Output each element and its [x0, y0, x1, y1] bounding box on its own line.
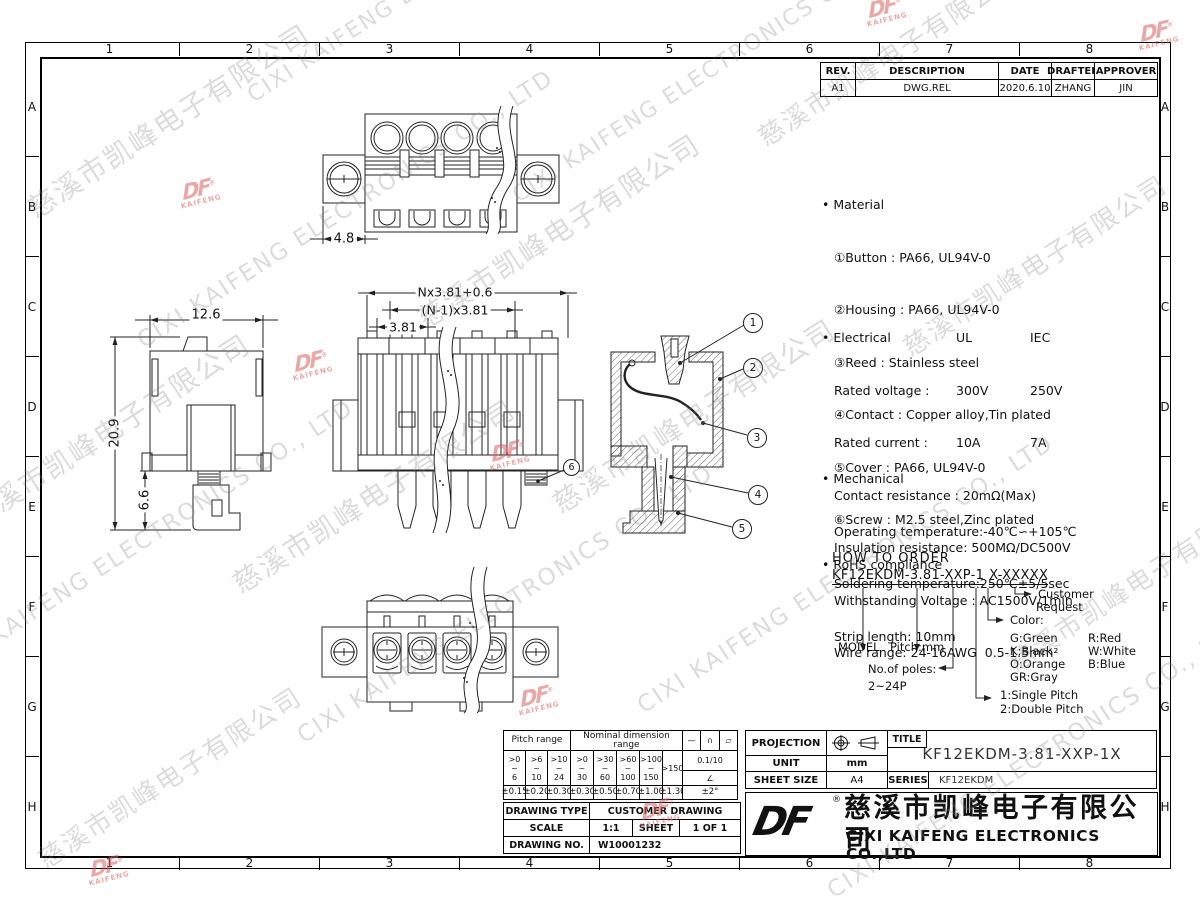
- material-item: ①Button : PA66, UL94V-0: [822, 249, 1051, 267]
- drawing-title: KF12EKDM-3.81-XXP-1X: [922, 745, 1121, 763]
- grid-row-label-H: H: [1159, 757, 1171, 856]
- grid-row-label-H: H: [25, 757, 39, 856]
- kaifeng-logo-icon: DF®: [1135, 15, 1176, 46]
- order-pitch-label: Pitch:mm: [890, 640, 944, 654]
- grid-row-label-B: B: [25, 157, 39, 257]
- tol-range-cell: >6~10: [526, 751, 547, 785]
- projection-label: PROJECTION: [746, 731, 826, 755]
- order-customer-label-2: Request: [1036, 600, 1083, 614]
- drawing-no-value: W10001232: [590, 837, 740, 853]
- order-poles-value: 2~24P: [868, 679, 907, 693]
- rev-header: APPROVER: [1095, 63, 1157, 79]
- tol-nominal-header: Nominal dimension range: [571, 731, 682, 750]
- arc-symbol: ∩: [701, 731, 719, 750]
- tol-value: ±0.70: [617, 786, 639, 799]
- grid-col-label-2: 2: [180, 856, 320, 870]
- material-title: Material: [822, 196, 1051, 214]
- unit-value: mm: [827, 756, 887, 771]
- kaifeng-logo-icon: DF®: [863, 0, 904, 21]
- angle-tolerance: ±2°: [683, 786, 737, 799]
- scale-label: SCALE: [504, 820, 589, 836]
- grid-col-label-3: 3: [320, 856, 460, 870]
- front-view-drawing: [328, 281, 594, 535]
- order-pitch-type-2: 2:Double Pitch: [1000, 702, 1084, 716]
- grid-col-label-2: 2: [180, 42, 320, 56]
- mechanical-title: Mechanical: [822, 470, 1077, 488]
- grid-col-label-5: 5: [600, 42, 740, 56]
- electrical-title: Electrical: [822, 329, 956, 347]
- balloon-3: 3: [747, 428, 767, 448]
- dim-flange-width: 4.8: [332, 232, 357, 247]
- grid-col-label-4: 4: [460, 42, 600, 56]
- balloon-1: 1: [743, 313, 763, 333]
- rev-cell: DWG.REL: [856, 80, 998, 96]
- grid-col-label-1: 1: [40, 42, 180, 56]
- tol-value: ±0.30: [548, 786, 570, 799]
- order-poles-label: No.of poles:: [868, 662, 936, 676]
- dim-pitch: 3.81: [387, 320, 419, 335]
- flatness-symbol: —: [683, 731, 700, 750]
- electrical-row-label: Rated voltage :: [834, 382, 956, 400]
- grid-col-label-8: 8: [1020, 42, 1159, 56]
- drawing-info-table: DRAWING TYPE CUSTOMER DRAWING SCALE 1:1 …: [503, 802, 741, 854]
- company-name-en: CIXI KAIFENG ELECTRONICS CO.,LTD: [846, 827, 1157, 863]
- grid-row-label-B: B: [1159, 157, 1171, 257]
- tol-range-cell: >100~150: [640, 751, 662, 785]
- rev-cell: JIN: [1095, 80, 1157, 96]
- scale-value: 1:1: [590, 820, 632, 836]
- rev-header: DESCRIPTION: [856, 63, 998, 79]
- chamfer-tolerance: 0.1/10: [683, 751, 737, 770]
- tol-range-cell: >0~6: [504, 751, 525, 785]
- grid-band-left: ABCDEFGH: [25, 57, 39, 856]
- order-color-option: W:White: [1088, 644, 1136, 658]
- order-color-option: GR:Gray: [1010, 670, 1058, 684]
- grid-row-label-E: E: [1159, 457, 1171, 557]
- order-color-option: K:Black: [1010, 644, 1053, 658]
- title-label: TITLE: [888, 731, 927, 748]
- dim-body-width: 12.6: [190, 308, 223, 323]
- electrical-row-ul: 300V: [956, 382, 1030, 400]
- tol-value: ±0.50: [594, 786, 616, 799]
- rev-cell: A1: [821, 80, 855, 96]
- series-value: KF12EKDM: [929, 772, 1156, 788]
- grid-col-label-6: 6: [740, 42, 880, 56]
- company-block: DF ® 慈溪市凯峰电子有限公司 CIXI KAIFENG ELECTRONIC…: [745, 792, 1158, 856]
- balloon-2: 2: [743, 358, 763, 378]
- grid-col-label-7: 7: [880, 42, 1020, 56]
- dim-pin-length: 6.6: [138, 488, 153, 513]
- tol-range-cell: >0~30: [571, 751, 593, 785]
- tol-range-cell: >150: [663, 751, 682, 785]
- drawing-no-label: DRAWING NO.: [504, 837, 589, 853]
- grid-row-label-E: E: [25, 457, 39, 557]
- grid-row-label-A: A: [1159, 57, 1171, 157]
- watermark-logo: DF® KAIFENG: [861, 0, 908, 29]
- rev-header: REV.: [821, 63, 855, 79]
- grid-row-label-D: D: [1159, 357, 1171, 457]
- electrical-col-iec: IEC: [1030, 329, 1050, 347]
- grid-row-label-G: G: [25, 657, 39, 757]
- revision-table: REV. DESCRIPTION DATE DRAFTER APPROVER A…: [820, 62, 1158, 97]
- drawing-type-value: CUSTOMER DRAWING: [590, 803, 740, 819]
- order-pitch-type-1: 1:Single Pitch: [1000, 688, 1078, 702]
- third-angle-projection-icon: [831, 735, 883, 751]
- grid-col-label-5: 5: [600, 856, 740, 870]
- order-color-option: R:Red: [1088, 631, 1121, 645]
- tol-value: ±0.15: [504, 786, 525, 799]
- rev-cell: ZHANG: [1052, 80, 1094, 96]
- dim-inner-pitch: (N-1)x3.81: [420, 303, 491, 318]
- electrical-row-iec: 250V: [1030, 382, 1062, 400]
- order-color-option: O:Orange: [1010, 657, 1065, 671]
- grid-row-label-D: D: [25, 357, 39, 457]
- projection-symbol-cell: [827, 731, 887, 755]
- grid-row-label-F: F: [25, 557, 39, 657]
- title-cell: TITLE KF12EKDM-3.81-XXP-1X: [888, 731, 1156, 771]
- tol-value: ±0.20: [526, 786, 547, 799]
- tolerance-table: Pitch range Nominal dimension range — ∩ …: [503, 730, 738, 800]
- sheet-value: 1 OF 1: [680, 820, 740, 836]
- balloon-6: 6: [563, 459, 580, 476]
- unit-label: UNIT: [746, 756, 826, 771]
- section-view-drawing: [597, 306, 809, 568]
- tol-range-cell: >10~24: [548, 751, 570, 785]
- angle-symbol: ∠: [683, 771, 737, 785]
- order-customer-label: Customer: [1038, 587, 1094, 601]
- tol-range-cell: >30~60: [594, 751, 616, 785]
- parallelogram-symbol: ▱: [720, 731, 737, 750]
- side-view-drawing: [95, 303, 290, 548]
- grid-row-label-A: A: [25, 57, 39, 157]
- grid-band-top: 12345678: [40, 42, 1159, 56]
- sheet-label: SHEET: [633, 820, 679, 836]
- grid-row-label-C: C: [25, 257, 39, 357]
- order-color-option: G:Green: [1010, 631, 1058, 645]
- tol-value: ±1.30: [663, 786, 682, 799]
- order-color-option: B:Blue: [1088, 657, 1125, 671]
- balloon-4: 4: [748, 485, 768, 505]
- balloon-5: 5: [732, 519, 752, 539]
- engineering-drawing-sheet: 12345678 12345678 ABCDEFGH ABCDEFGH 慈溪市凯…: [0, 0, 1200, 910]
- order-color-label: Color:: [1010, 613, 1044, 627]
- rev-header: DRAFTER: [1052, 63, 1094, 79]
- title-block: PROJECTION TITLE KF12EKDM-3.81-XXP-1X UN…: [745, 730, 1157, 789]
- tol-pitch-header: Pitch range: [504, 731, 570, 750]
- order-model-label: MODEL: [838, 640, 880, 654]
- sheet-size-label: SHEET SIZE: [746, 772, 826, 788]
- tol-range-cell: >60~100: [617, 751, 639, 785]
- grid-col-label-3: 3: [320, 42, 460, 56]
- series-label: SERIES: [888, 772, 928, 788]
- grid-row-label-C: C: [1159, 257, 1171, 357]
- rev-cell: 2020.6.10: [999, 80, 1051, 96]
- grid-col-label-4: 4: [460, 856, 600, 870]
- electrical-col-ul: UL: [956, 329, 1030, 347]
- sheet-size-value: A4: [827, 772, 887, 788]
- dim-height: 20.9: [108, 417, 123, 450]
- kaifeng-logo-icon: DF: [749, 799, 811, 845]
- rev-header: DATE: [999, 63, 1051, 79]
- registered-mark: ®: [832, 795, 841, 805]
- tol-value: ±0.30: [571, 786, 593, 799]
- grid-band-right: ABCDEFGH: [1159, 57, 1171, 856]
- drawing-type-label: DRAWING TYPE: [504, 803, 589, 819]
- grid-col-label-1: 1: [40, 856, 180, 870]
- bottom-front-view-drawing: [298, 563, 592, 715]
- dim-total-pitch: Nx3.81+0.6: [416, 285, 495, 300]
